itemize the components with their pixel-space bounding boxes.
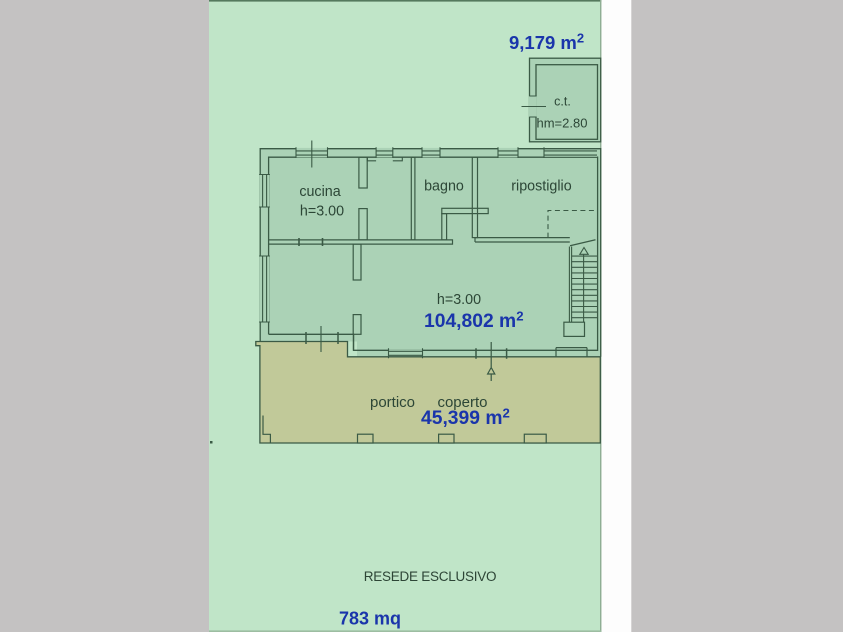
svg-text:h=3.00: h=3.00	[300, 204, 344, 220]
svg-text:portico: portico	[370, 394, 415, 411]
svg-text:hm=2.80: hm=2.80	[537, 116, 588, 131]
svg-text:ripostiglio: ripostiglio	[511, 179, 571, 195]
svg-text:9,179 m2: 9,179 m2	[509, 31, 584, 54]
svg-text:h=3.00: h=3.00	[437, 292, 481, 308]
svg-text:783 mq: 783 mq	[339, 609, 401, 629]
svg-text:c.t.: c.t.	[554, 95, 571, 109]
svg-text:bagno: bagno	[424, 179, 464, 195]
svg-text:104,802 m2: 104,802 m2	[424, 308, 524, 332]
svg-text:cucina: cucina	[299, 184, 340, 200]
svg-text:45,399 m2: 45,399 m2	[421, 405, 510, 429]
svg-text:RESEDE ESCLUSIVO: RESEDE ESCLUSIVO	[364, 569, 497, 584]
